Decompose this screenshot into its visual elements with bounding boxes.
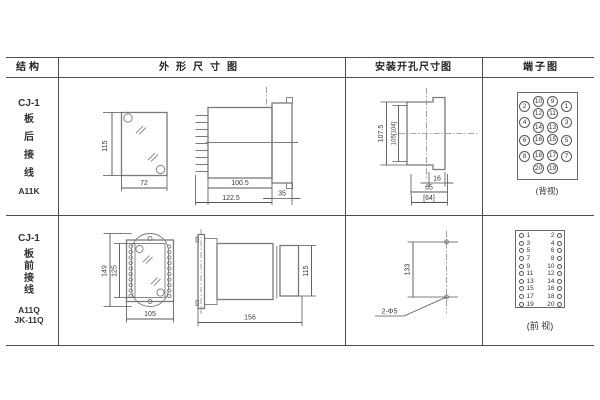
structure-char: 板 — [0, 249, 58, 261]
terminal-18: 18 — [533, 150, 544, 161]
structure-char: 接 — [0, 273, 58, 285]
structure-cell-row2: CJ-1 板 前 接 线 A11Q JK-11Q — [0, 229, 58, 325]
front-view-label: (前 视) — [500, 319, 580, 332]
terminal-number: 17 — [527, 293, 540, 300]
dim-panel-35: 35 — [278, 191, 286, 198]
terminal-hole — [557, 294, 562, 299]
terminal-number: 6 — [540, 247, 555, 254]
terminal-14: 14 — [533, 122, 544, 133]
terminal-number: 7 — [527, 255, 540, 262]
terminal-hole — [519, 279, 524, 284]
terminal-20: 20 — [533, 163, 544, 174]
structure-char: 前 — [0, 261, 58, 273]
structure-code: JK-11Q — [0, 315, 58, 325]
outline-drawing-row1: 115 72 100.5 35 122.5 — [102, 87, 301, 205]
dim-outer-height-107-5: 107.5 — [378, 125, 385, 143]
terminal-number: 18 — [540, 293, 555, 300]
terminal-number: 11 — [527, 270, 540, 277]
structure-char: 接 — [0, 147, 58, 165]
terminal-13: 13 — [547, 122, 558, 133]
dim-body-depth-100-5: 100.5 — [231, 180, 249, 187]
terminal-hole — [519, 264, 524, 269]
terminal-number: 19 — [527, 301, 540, 308]
terminal-hole — [557, 248, 562, 253]
structure-char: 线 — [0, 285, 58, 297]
terminal-dot-columns — [129, 245, 171, 298]
terminal-12: 12 — [533, 108, 544, 119]
table-divider-col2 — [345, 57, 346, 345]
dim-slot-16: 16 — [433, 176, 441, 183]
terminal-hole — [557, 256, 562, 261]
structure-char: 后 — [0, 129, 58, 147]
terminal-number: 3 — [527, 240, 540, 247]
structure-code: A11Q — [0, 305, 58, 315]
terminal-diagram-front-view: 1234567891011121314151617181920 — [515, 230, 565, 308]
structure-code: A11K — [0, 183, 58, 199]
terminal-row-17-18: 1718 — [516, 293, 564, 301]
terminal-row-1-2: 12 — [516, 232, 564, 240]
outline-drawing-row2: 149 125 105 115 156 — [102, 229, 317, 326]
table-border-top — [6, 57, 594, 58]
terminal-number: 16 — [540, 285, 555, 292]
terminal-hole — [557, 264, 562, 269]
terminal-number: 20 — [540, 301, 555, 308]
dim-hole-spec-2-phi5: 2-Φ5 — [382, 309, 398, 316]
terminal-17: 17 — [547, 150, 558, 161]
terminal-row-9-10: 910 — [516, 262, 564, 270]
terminal-9: 9 — [547, 96, 558, 107]
terminal-4: 4 — [519, 117, 530, 128]
terminal-hole — [557, 286, 562, 291]
terminal-number: 15 — [527, 285, 540, 292]
terminal-number: 14 — [540, 278, 555, 285]
structure-cell-row1: CJ-1 板 后 接 线 A11K — [0, 96, 58, 199]
terminal-row-5-6: 56 — [516, 247, 564, 255]
terminal-1: 1 — [561, 101, 572, 112]
terminal-8: 8 — [519, 151, 530, 162]
terminal-hole — [557, 279, 562, 284]
terminal-hole — [557, 302, 562, 307]
structure-char: 板 — [0, 111, 58, 129]
terminal-19: 19 — [547, 163, 558, 174]
terminal-row-13-14: 1314 — [516, 278, 564, 286]
terminal-hole — [519, 256, 524, 261]
terminal-hole — [519, 286, 524, 291]
header-structure: 结构 — [0, 60, 58, 76]
terminal-3: 3 — [561, 117, 572, 128]
terminal-number: 4 — [540, 240, 555, 247]
terminal-hole — [519, 271, 524, 276]
terminal-row-15-16: 1516 — [516, 285, 564, 293]
datasheet-page: 结构 外形尺寸图 安装开孔尺寸图 端子图 CJ-1 板 后 接 线 A11K C… — [0, 0, 600, 400]
terminal-number: 10 — [540, 263, 555, 270]
terminal-2: 2 — [519, 101, 530, 112]
terminal-hole — [557, 241, 562, 246]
terminal-number: 13 — [527, 278, 540, 285]
dim-inner-height-105-104: 105[104] — [392, 121, 398, 145]
terminal-11: 11 — [547, 108, 558, 119]
terminal-number: 1 — [527, 232, 540, 239]
terminal-row-19-20: 1920 — [516, 300, 564, 308]
dim-height-115: 115 — [102, 140, 109, 151]
terminal-row-3-4: 34 — [516, 240, 564, 248]
table-divider-col3 — [482, 57, 483, 345]
terminal-row-11-12: 1112 — [516, 270, 564, 278]
terminal-hole — [519, 233, 524, 238]
terminal-15: 15 — [547, 134, 558, 145]
table-border-bottom — [6, 345, 594, 346]
terminal-number: 8 — [540, 255, 555, 262]
dim-height-115: 115 — [303, 265, 310, 276]
dim-window-height-125: 125 — [112, 265, 119, 277]
terminal-row-7-8: 78 — [516, 255, 564, 263]
terminal-hole — [557, 271, 562, 276]
table-border-row-divider — [6, 215, 594, 216]
terminal-number: 12 — [540, 270, 555, 277]
terminal-hole — [519, 241, 524, 246]
terminal-hole — [557, 233, 562, 238]
mounting-drawing-row1: 107.5 105[104] 16 65 [64] — [378, 88, 477, 206]
dim-span-65: 65 — [425, 185, 433, 192]
header-outline-dimensions: 外形尺寸图 — [58, 60, 345, 76]
terminal-number: 5 — [527, 247, 540, 254]
terminal-16: 16 — [533, 134, 544, 145]
model-name: CJ-1 — [0, 96, 58, 111]
dim-hole-spacing-133: 133 — [405, 264, 412, 276]
terminal-10: 10 — [533, 96, 544, 107]
header-terminal-diagram: 端子图 — [482, 60, 600, 76]
terminal-hole — [519, 302, 524, 307]
header-mounting-holes: 安装开孔尺寸图 — [345, 60, 482, 76]
terminal-number: 9 — [527, 263, 540, 270]
dim-width-105: 105 — [144, 311, 156, 318]
terminal-hole — [519, 248, 524, 253]
structure-char: 线 — [0, 165, 58, 183]
back-view-label: (背视) — [507, 185, 587, 197]
terminal-hole — [519, 294, 524, 299]
table-divider-col1 — [58, 57, 59, 345]
model-name: CJ-1 — [0, 229, 58, 249]
dim-total-depth-122-5: 122.5 — [222, 195, 240, 202]
dim-plate-height-149: 149 — [102, 265, 109, 277]
terminal-7: 7 — [561, 151, 572, 162]
terminal-6: 6 — [519, 135, 530, 146]
terminal-5: 5 — [561, 135, 572, 146]
dim-span-alt-64: [64] — [423, 195, 435, 202]
terminal-diagram-back-view: 1092112114314131615651817872019 — [517, 92, 578, 180]
mounting-drawing-row2: 133 2-Φ5 — [375, 231, 458, 316]
terminal-number: 2 — [540, 232, 555, 239]
dim-width-72: 72 — [140, 180, 148, 187]
dim-total-depth-156: 156 — [244, 315, 256, 322]
table-border-header-bottom — [6, 77, 594, 78]
